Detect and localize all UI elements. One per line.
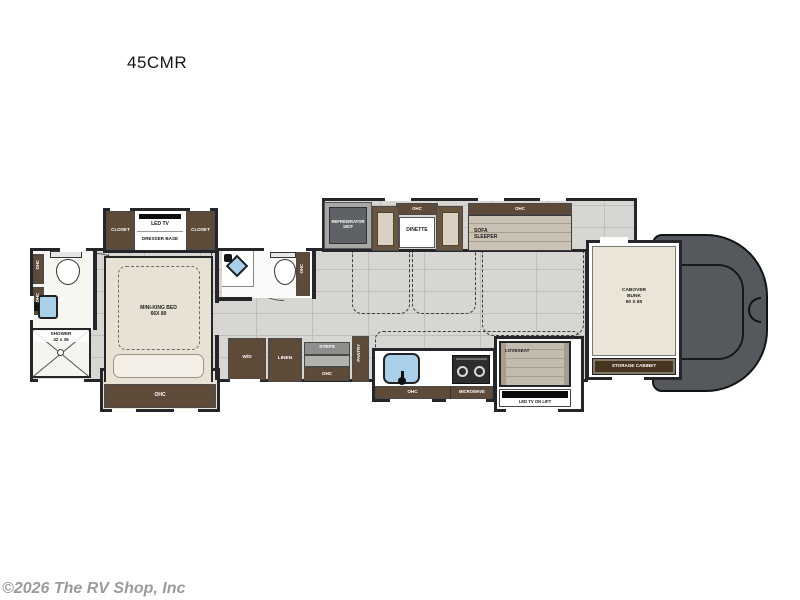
bed-ohc-label: OHC [104,392,216,398]
half-bath-wall-bottom [218,297,252,301]
window-gap [264,245,306,252]
burner-left [457,366,468,377]
shower-drain [57,349,64,356]
master-bath-ohc-lower-label: OHC [35,293,40,302]
window-gap [390,399,432,405]
master-toilet-tank [50,251,82,258]
mini-king-bed [104,256,213,382]
page-title: 45CMR [127,53,187,73]
dresser-base-label: DRESSER BASE [132,236,188,242]
window-gap [60,245,86,252]
cabover-bunk-label: CABOVER BUNK 60 X 80 [592,288,676,305]
half-bath-toilet-tank [270,252,296,258]
bedroom-tv [139,214,181,219]
window-gap [190,205,210,211]
bed-pillows [113,354,204,378]
window-gap [506,409,558,415]
dresser-divider [137,231,183,232]
bedroom-wall-lower [215,335,219,380]
window-gap [27,296,34,320]
bedroom-wall-upper [215,251,219,303]
window-gap [112,409,136,415]
master-bath-wall [93,251,97,330]
tv-on-lift [502,391,568,398]
cooktop [452,355,490,384]
slide-travel-sofa [482,252,584,336]
half-bath-wall-right [312,251,316,299]
refrigerator-label: REFRIGERATOR18CF [327,219,369,229]
slide-travel-dinette-left [352,252,410,314]
slide-travel-dinette-right [412,252,476,314]
steps-mid [304,355,350,367]
window-gap [612,377,644,383]
bed-label: MINI-KING BED66X 80 [104,305,213,317]
master-sink [38,295,58,319]
half-bath-faucet [224,254,232,262]
steps-label: STEPS [304,345,350,351]
window-gap [446,399,486,405]
tv-lift-label: LED TV ON LIFT [499,399,571,404]
half-bath-ohc-label: OHC [299,264,304,273]
window-gap [110,205,130,211]
copyright-text: ©2026 The RV Shop, Inc [2,580,185,598]
kitchen-ohc-label: OHC [375,389,450,395]
loveseat-label: LOVESEAT [505,348,545,354]
window-gap [540,195,566,201]
washer-dryer-label: W/D [228,355,266,361]
window-gap [230,379,260,385]
window-gap [385,195,411,201]
closet-left-label: CLOSET [106,227,135,233]
floorplan-page: 45CMR CLOSET CLOSET LED TV DRESSER BASE … [0,0,800,600]
dinette-bench-left [372,206,399,251]
window-gap [174,409,198,415]
dinette-bench-right [436,206,463,251]
sofa-sleeper-label: SOFASLEEPER [474,228,514,240]
window-gap [600,237,628,243]
kitchen-faucet-stem [401,371,404,379]
dinette-label: DINETTE [399,227,435,233]
linen-label: LINEN [268,356,302,362]
shower-label: SHOWER42 x 36 [33,331,89,342]
pantry-label: PANTRY [356,344,361,362]
steps-ohc-label: OHC [304,371,350,377]
microwave-label: MICROWAVE [451,389,493,394]
half-bath-ohc [296,252,310,296]
sofa-ohc-label: OHC [498,206,542,211]
dinette-ohc-label: OHC [396,206,438,211]
led-tv-label: LED TV [136,221,184,227]
burner-right [474,366,485,377]
window-gap [478,195,504,201]
window-gap [38,379,84,385]
closet-right-label: CLOSET [186,227,215,233]
master-bath-ohc-upper-label: OHC [35,260,40,269]
storage-cabinet-label: STORAGE CABINET [592,363,676,369]
